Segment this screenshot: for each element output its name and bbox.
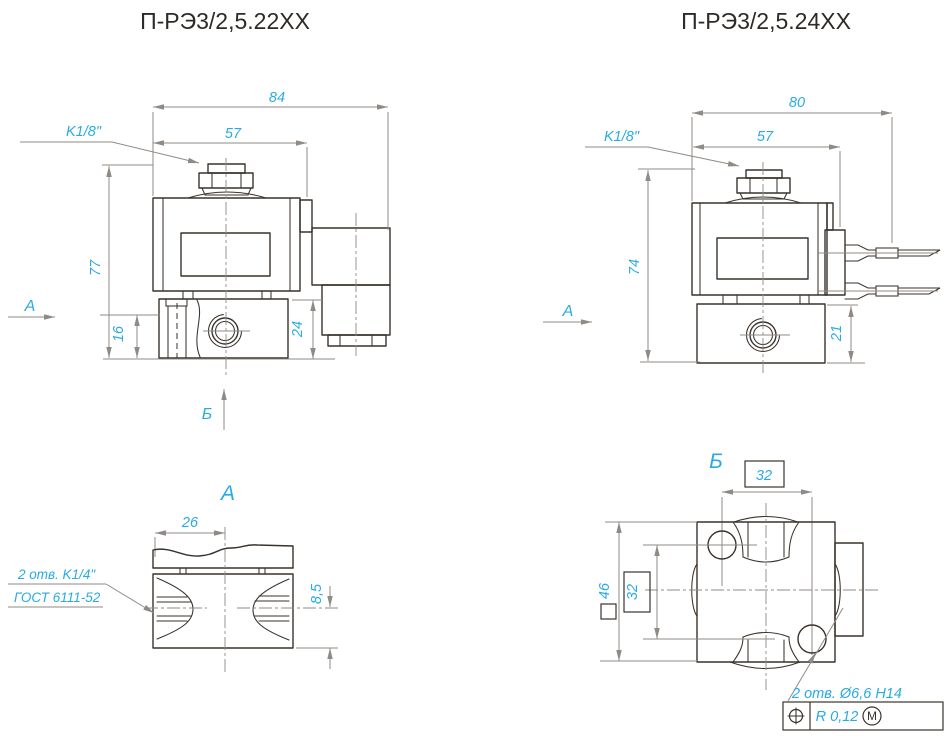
dim-text-32h: 32	[756, 468, 772, 484]
valve-outline-2524	[692, 170, 845, 363]
dim-text-80: 80	[789, 95, 805, 111]
front-view-2522: П-РЭ3/2,5.22ХХ	[8, 8, 390, 430]
drawing-sheet: П-РЭ3/2,5.22ХХ	[0, 0, 946, 739]
view-arrow-b-label: Б	[202, 406, 212, 423]
view-b-title: Б	[709, 450, 723, 473]
dim-text-57: 57	[225, 126, 242, 142]
dimension-80: 80	[692, 95, 892, 243]
dim-text-8-5: 8,5	[309, 583, 325, 604]
title-left: П-РЭ3/2,5.22ХХ	[140, 8, 310, 34]
technical-drawing: П-РЭ3/2,5.22ХХ	[0, 0, 946, 739]
dim-text-16: 16	[111, 325, 127, 342]
coil-label-window-right	[717, 238, 808, 279]
dimension-32-horizontal: 32	[722, 461, 812, 655]
view-arrow-a-right-label: A	[562, 303, 574, 320]
fitting-hex-nut-right	[737, 178, 790, 193]
thread-label-right: K1/8"	[604, 129, 640, 145]
dimension-24: 24	[290, 300, 322, 359]
view-a-title: A	[219, 482, 235, 505]
dim-text-74: 74	[627, 259, 643, 275]
terminal-block	[825, 230, 845, 295]
tolerance-value: R 0,12	[816, 709, 859, 725]
dim-text-26: 26	[181, 515, 199, 531]
front-view-2524: П-РЭ3/2,5.24ХХ	[543, 8, 940, 375]
dim-text-77: 77	[88, 259, 104, 276]
position-tolerance-icon	[788, 708, 804, 724]
section-view-a: A 26	[8, 482, 338, 672]
dimension-74: 74	[627, 169, 695, 361]
coil-body-right	[692, 203, 827, 295]
view-arrow-a-right: A	[543, 303, 592, 322]
dimension-8-5: 8,5	[296, 583, 338, 669]
view-arrow-b: Б	[202, 389, 224, 430]
right-port-funnel	[253, 579, 289, 640]
holes-note: 2 отв. Ø6,6 H14	[791, 686, 902, 702]
fitting-top	[208, 164, 245, 173]
view-b-outline	[692, 517, 863, 669]
coil-broken-piece	[153, 545, 293, 568]
mmc-letter: M	[867, 709, 877, 723]
port-note-callout: 2 отв. K1/4" ГОСТ 6111-52	[8, 567, 154, 613]
dim-text-24: 24	[290, 321, 306, 338]
bottom-port-cutout	[730, 633, 800, 669]
dimension-26: 26	[155, 515, 225, 557]
din-connector-arm	[312, 228, 390, 285]
valve-body-side	[153, 574, 293, 648]
bottom-view-b: Б 32	[597, 450, 943, 730]
spade-terminal-2	[818, 283, 940, 299]
dimension-21: 21	[827, 305, 865, 363]
connector-step	[300, 200, 312, 232]
thread-label-left: K1/8"	[66, 124, 102, 140]
fitting-top-right	[746, 170, 782, 178]
centerlines-2524	[740, 162, 790, 375]
dimension-57-left: 57	[153, 126, 307, 197]
view-arrow-a-label: A	[24, 298, 36, 315]
din-connector-gland	[328, 335, 386, 346]
view-arrow-a-left: A	[8, 298, 55, 317]
mmc-modifier-icon: M	[863, 707, 881, 725]
dim-text-84: 84	[269, 90, 285, 106]
valve-outline-2522	[153, 164, 390, 358]
coil-body	[153, 198, 300, 291]
connector-bottom	[835, 543, 863, 636]
left-port-funnel	[157, 578, 193, 639]
feature-control-frame: R 0,12 M	[783, 702, 943, 730]
break-line	[197, 300, 200, 357]
dim-text-46: 46	[597, 582, 613, 599]
title-right: П-РЭ3/2,5.24ХХ	[681, 8, 851, 34]
coil-label-window	[181, 233, 270, 276]
dim-text-21: 21	[829, 325, 845, 342]
dimension-32-vertical: 32	[624, 545, 657, 639]
valve-body	[159, 299, 288, 358]
valve-body-right	[697, 304, 825, 363]
dimension-46: 46	[597, 522, 697, 661]
dim-text-32v: 32	[625, 584, 641, 600]
port-note-line2: ГОСТ 6111-52	[14, 590, 101, 605]
spade-terminal-1	[818, 245, 940, 261]
dim-text-57-right: 57	[757, 129, 774, 145]
square-symbol	[601, 604, 616, 619]
view-a-outline	[153, 545, 293, 648]
port-note-line1: 2 отв. K1/4"	[17, 567, 96, 582]
